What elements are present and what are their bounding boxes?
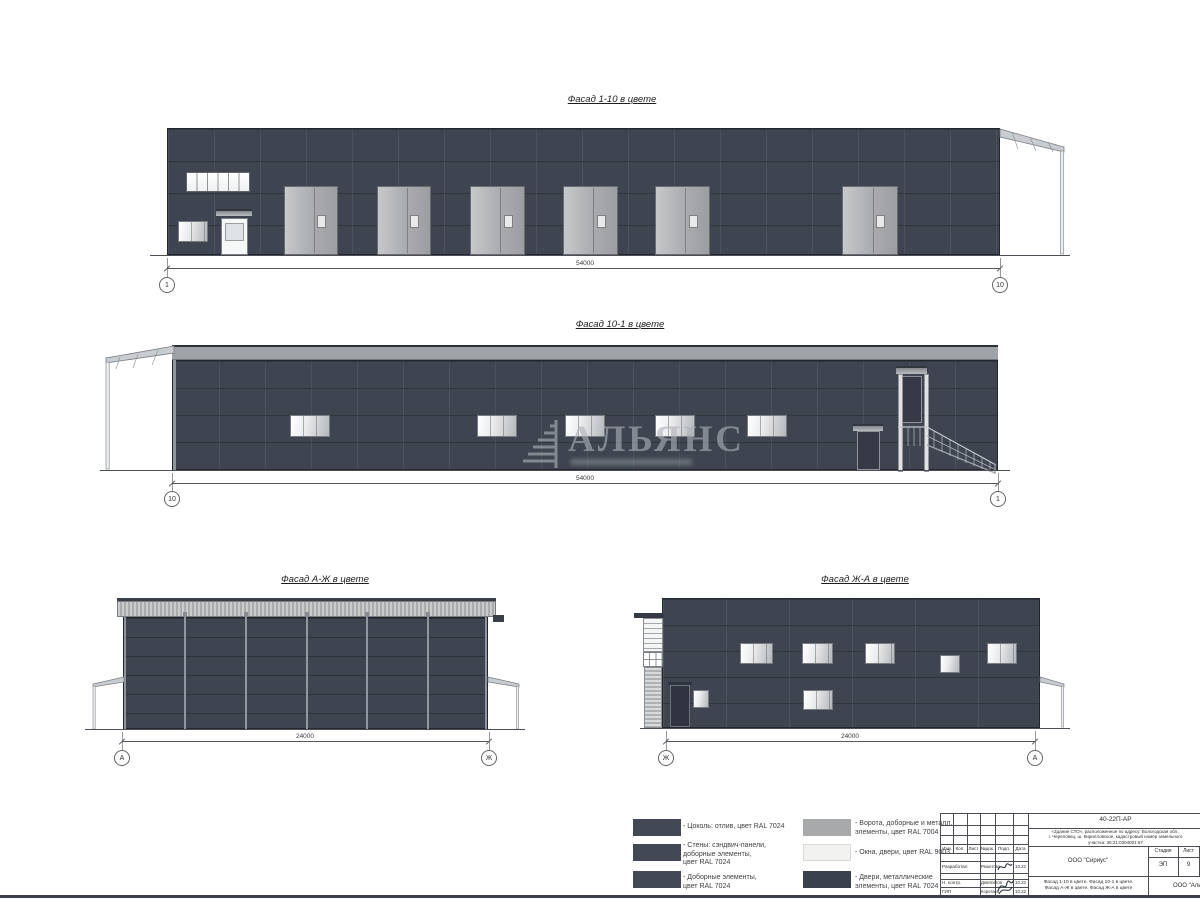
column-cap (426, 612, 430, 617)
facade-4-window-1 (740, 643, 773, 664)
column-strip (366, 617, 368, 729)
facade-2-axis-marker-left: 10 (164, 491, 180, 507)
facade-4-stair-window (643, 652, 663, 667)
column-strip (184, 617, 186, 729)
legend-swatch-windows (803, 844, 851, 861)
facade-4-small-square-window (940, 655, 960, 673)
col-ndoc: №док. (980, 846, 995, 851)
col-podp: Подп. (995, 846, 1013, 851)
signature-scribble (996, 875, 1014, 896)
facade-2-window-5 (747, 415, 787, 437)
entry-door-glass (225, 223, 244, 241)
facade-4-ground-line (640, 728, 1070, 730)
facade-1-ribbon-window (186, 172, 250, 192)
facade-4-lower-window (803, 690, 833, 710)
row-name: Девятилов (981, 880, 997, 885)
facade-1-dim-line (167, 268, 1000, 270)
facade-3-dim-line (122, 741, 489, 743)
facade-3-left-canopy (90, 674, 126, 732)
facade-4-window-3 (865, 643, 895, 664)
sheet-label: Лист (1178, 848, 1199, 854)
facade-2-dim-line (172, 483, 998, 485)
facade-1-dimension: 54000 (520, 260, 650, 267)
col-list: Лист (967, 846, 980, 851)
project-description: «Здание СТО», расположенное по адресу: В… (1030, 829, 1200, 845)
watermark-text: АЛЬЯНС (568, 418, 745, 461)
facade-2-upper-door (901, 376, 922, 423)
marker-line (666, 742, 667, 750)
marker-line (1035, 742, 1036, 750)
facade-2-left-canopy (100, 342, 176, 474)
facade-1-axis-marker-right: 10 (992, 277, 1008, 293)
facade-4-dimension: 24000 (790, 733, 910, 740)
facade-1-entry-canopy (216, 209, 252, 216)
sheet-value: 9 (1178, 862, 1199, 868)
facade-2-dimension: 54000 (520, 475, 650, 482)
column-cap (305, 612, 309, 617)
facade-1-gate-6 (842, 186, 898, 255)
customer-org: ООО "Сириус" (1028, 858, 1148, 864)
title-block: 40-22П-АР «Здание СТО», расположенное по… (940, 813, 1200, 896)
legend-swatch-trim (633, 871, 681, 888)
row-date: 10.22 (1013, 864, 1028, 869)
row-name: Коротаев (981, 889, 997, 894)
facade-1-title: Фасад 1-10 в цвете (497, 94, 727, 105)
column-cap (365, 612, 369, 617)
facade-3-right-canopy (486, 674, 522, 732)
facade-4-stair-shaft (644, 667, 662, 728)
facade-2-title: Фасад 10-1 в цвете (505, 319, 735, 330)
row-date: 10.22 (1013, 889, 1028, 894)
column-strip (306, 617, 308, 729)
facade-1-gate-4 (563, 186, 618, 255)
facade-1-ground-line (150, 255, 1070, 257)
facade-4-title: Фасад Ж-А в цвете (750, 574, 980, 585)
facade-1-entry-door (221, 218, 248, 255)
facade-3-ground-line (85, 729, 525, 731)
facade-4-lower-small-window (693, 690, 709, 708)
stage-label: Стадия (1148, 848, 1178, 854)
facade-2-window-2 (477, 415, 517, 437)
facade-4-right-canopy (1038, 674, 1068, 730)
facade-2-door-canopy (853, 424, 883, 431)
legend-swatch-gates (803, 819, 851, 836)
row-name: Решетова (981, 864, 997, 869)
facade-4-axis-marker-left: Ж (658, 750, 674, 766)
facade-2-window-1 (290, 415, 330, 437)
facade-1-small-window (178, 221, 208, 242)
facade-3-gutter-bracket (493, 615, 504, 622)
legend-swatch-walls (633, 844, 681, 861)
facade-2-stair-canopy (896, 366, 927, 374)
facade-3-axis-marker-right: Ж (481, 750, 497, 766)
row-role: Разработал (942, 864, 980, 869)
legend-swatch-doors (803, 871, 851, 888)
doc-number: 40-22П-АР (1028, 816, 1200, 823)
executor-org: ООО "Альянс" (1148, 883, 1200, 889)
column-strip (245, 617, 247, 729)
alliance-triangle-logo (520, 418, 562, 470)
facade-2-metal-door (857, 431, 880, 470)
stage-value: ЭП (1148, 862, 1178, 868)
facade-3-title: Фасад А-Ж в цвете (210, 574, 440, 585)
facade-3-axis-marker-left: А (114, 750, 130, 766)
facade-3-dimension: 24000 (245, 733, 365, 740)
facade-4-window-2 (802, 643, 833, 664)
facade-4-axis-marker-right: А (1027, 750, 1043, 766)
facade-1-gate-1 (284, 186, 338, 255)
facade-4-dim-line (666, 741, 1035, 743)
signature-scribble (996, 860, 1013, 873)
col-izm: Изм. (941, 846, 953, 851)
facade-4-wall (662, 598, 1040, 728)
facade-1-gate-5 (655, 186, 710, 255)
watermark-tagline-bar (570, 459, 692, 465)
marker-line (122, 742, 123, 750)
facade-4-window-4 (987, 643, 1017, 664)
row-role: Н. контр. (942, 880, 980, 885)
marker-line (489, 742, 490, 750)
column-cap (244, 612, 248, 617)
facade-1-gate-3 (470, 186, 525, 255)
drawing-sheet: Фасад 1-10 в цвете 54000 1 10 Фасад 10-1… (0, 0, 1200, 900)
facade-2-external-stair (893, 418, 1005, 474)
row-role: ГИП (942, 889, 980, 894)
sheet-content: Фасад 1-10 в цвете. Фасад 10-1 в цвете. … (1030, 880, 1147, 892)
column-cap (183, 612, 187, 617)
legend-swatch-plinth (633, 819, 681, 836)
col-data: Дата (1013, 846, 1028, 851)
facade-1-gate-2 (377, 186, 431, 255)
facade-2-axis-marker-right: 1 (990, 491, 1006, 507)
row-date: 10.22 (1013, 880, 1028, 885)
column-strip (427, 617, 429, 729)
facade-4-stair-railing (643, 618, 663, 652)
facade-2-parapet-band (172, 345, 998, 360)
facade-1-axis-marker-left: 1 (159, 277, 175, 293)
sheet-frame-bottom (0, 895, 1200, 898)
col-kop: Коп. (953, 846, 967, 851)
facade-1-right-canopy (998, 126, 1070, 258)
facade-4-recessed-door (670, 685, 690, 727)
